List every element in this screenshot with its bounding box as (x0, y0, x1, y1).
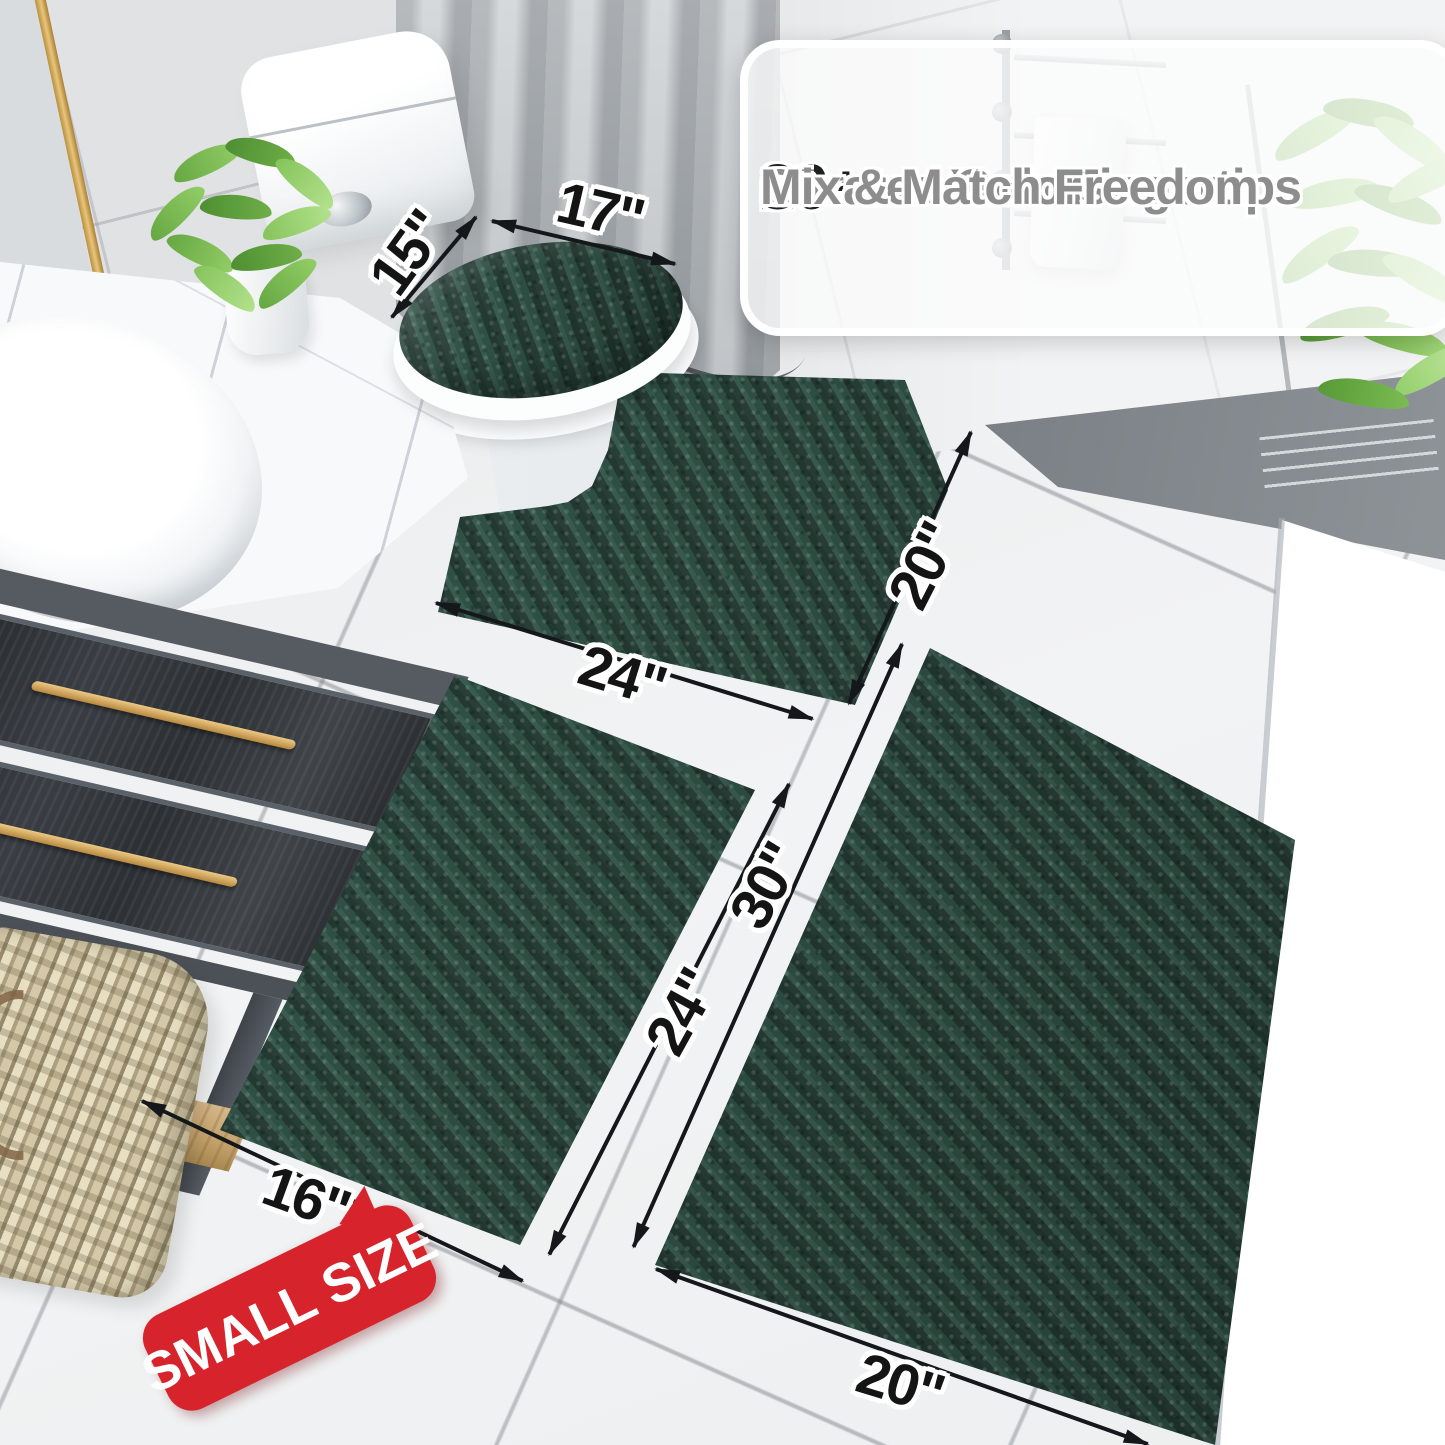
leaf (271, 150, 342, 215)
counter-plant (130, 140, 360, 320)
feature-label: Mix & Match Freedom (760, 162, 1258, 212)
drawer-gold-handle (30, 680, 297, 750)
product-image: 17" 15" 24" 20" 24" 30" 16" 20" ✓ 20+ Si… (0, 0, 1445, 1445)
toilet-tank-seam (249, 97, 456, 140)
leaf (199, 192, 273, 222)
leaf (1316, 372, 1411, 414)
feature-callout-panel: ✓ 20+ Sizes at Your Fingertips ✓ 30+ Cur… (740, 40, 1445, 336)
drawer-gold-handle (0, 818, 239, 888)
